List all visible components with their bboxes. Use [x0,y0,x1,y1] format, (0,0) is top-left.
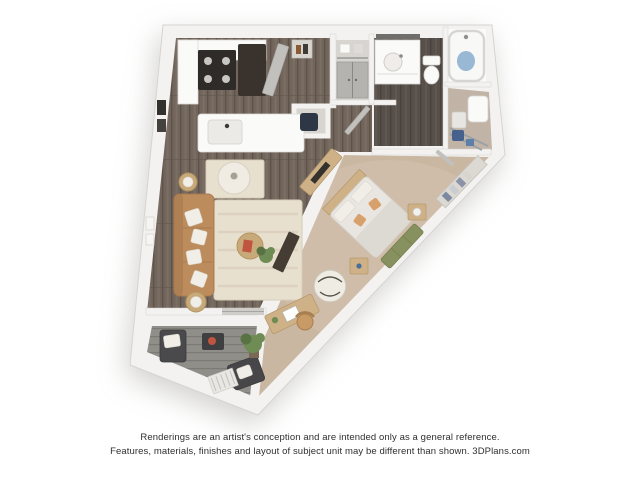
kitchen-tall-cabinet [178,40,198,104]
floorplan-rendering [0,0,640,480]
wicker-stool-top [183,177,193,187]
entry-niche-shelf [292,40,312,58]
apartment-plan [130,25,510,415]
closet-box-2 [354,44,363,53]
wicker-stool-top-2 [191,297,202,308]
niche-bottle-2 [303,44,308,54]
disclaimer-line-2: Features, materials, finishes and layout… [0,445,640,459]
balcony-chair-pillow [163,334,181,348]
tub-bottom-wall [445,82,491,87]
balcony-table-tray [208,337,216,345]
bathroom-left-wall [369,34,374,104]
coffee-table-book [242,240,253,253]
toilet-bowl [424,66,439,84]
closet-box [340,44,350,53]
tub-faucet [464,35,468,39]
sofa-pillow-3 [186,249,202,265]
bathtub-water [457,51,475,71]
sofa-pillow-2 [191,229,208,246]
vacuum-unit [300,113,318,131]
floorplan-page: Renderings are an artist's conception an… [0,0,640,480]
nightstand-decor [356,263,361,268]
nightstand-lamp [413,208,421,216]
toilet-tank [423,56,440,65]
vanity-mirror [376,34,420,39]
bedroom-top-wall [372,149,491,155]
refrigerator [238,44,266,96]
utility-box [452,112,466,128]
stove [198,50,236,90]
utility-left-wall [443,86,448,153]
desk-chair [297,314,313,330]
laundry-basket [452,130,464,141]
kitchen-wall-art [157,100,166,115]
living-wall-art [146,217,154,230]
sofa-backrest [174,194,183,296]
closet-bottom-wall [330,100,396,105]
laundry-item [466,139,474,146]
papasan-chair [314,270,346,302]
living-wall-art-2 [146,234,154,245]
disclaimer-line-1: Renderings are an artist's conception an… [0,431,640,445]
sink-faucet [225,124,229,128]
sofa [174,194,214,296]
kitchen-wall-art-2 [157,119,166,132]
table-centerpiece [231,173,238,180]
closet-left-wall [330,34,336,108]
door-handle [348,79,350,81]
disclaimer: Renderings are an artist's conception an… [0,431,640,458]
vanity-faucet [399,54,403,58]
door-handle-2 [355,79,357,81]
water-heater [468,96,488,122]
niche-bottle [296,45,301,54]
island-sink [208,120,242,144]
tub-partition-wall [443,27,448,87]
